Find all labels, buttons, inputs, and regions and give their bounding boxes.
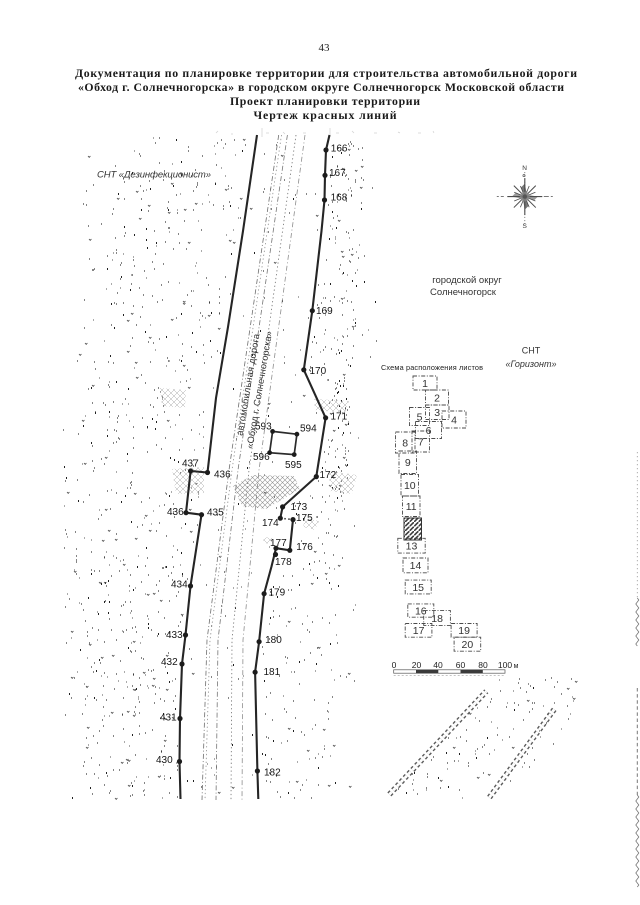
svg-text:435: 435 bbox=[207, 508, 224, 519]
svg-text:173: 173 bbox=[291, 502, 308, 513]
svg-text:15: 15 bbox=[412, 582, 424, 594]
svg-text:8: 8 bbox=[402, 437, 408, 449]
svg-text:СНТ «Дезинфекционист»: СНТ «Дезинфекционист» bbox=[97, 170, 211, 181]
svg-text:м: м bbox=[514, 663, 519, 670]
svg-text:430: 430 bbox=[156, 755, 173, 766]
svg-text:19: 19 bbox=[458, 625, 470, 637]
svg-text:18: 18 bbox=[431, 613, 443, 625]
svg-text:434: 434 bbox=[171, 580, 188, 591]
svg-text:«Обход г. Солнечногорска» в го: «Обход г. Солнечногорска» в городском ок… bbox=[78, 80, 564, 94]
svg-text:176: 176 bbox=[296, 542, 313, 553]
svg-text:3: 3 bbox=[434, 407, 440, 419]
svg-text:1: 1 bbox=[422, 378, 428, 390]
svg-text:180: 180 bbox=[265, 635, 282, 646]
svg-text:«Горизонт»: «Горизонт» bbox=[506, 359, 557, 369]
svg-text:13: 13 bbox=[406, 541, 418, 553]
svg-text:СНТ: СНТ bbox=[522, 346, 541, 356]
svg-text:14: 14 bbox=[410, 560, 422, 572]
svg-text:168: 168 bbox=[331, 193, 348, 204]
svg-text:0: 0 bbox=[392, 660, 397, 670]
svg-text:437: 437 bbox=[182, 459, 199, 470]
svg-text:100: 100 bbox=[498, 660, 512, 670]
svg-text:10: 10 bbox=[404, 480, 416, 492]
svg-text:20: 20 bbox=[462, 639, 474, 651]
svg-text:432: 432 bbox=[161, 657, 178, 668]
svg-text:11: 11 bbox=[406, 501, 417, 513]
svg-text:9: 9 bbox=[405, 457, 411, 469]
svg-text:60: 60 bbox=[456, 660, 466, 670]
svg-text:178: 178 bbox=[275, 557, 292, 568]
svg-text:177: 177 bbox=[270, 538, 287, 549]
svg-text:4: 4 bbox=[451, 414, 457, 426]
svg-text:174: 174 bbox=[262, 518, 279, 529]
svg-text:172: 172 bbox=[320, 470, 337, 481]
svg-text:433: 433 bbox=[166, 630, 183, 641]
svg-text:Проект планировки территории: Проект планировки территории bbox=[230, 94, 420, 108]
svg-text:595: 595 bbox=[285, 460, 302, 471]
svg-text:7: 7 bbox=[418, 436, 424, 448]
svg-text:167: 167 bbox=[329, 168, 346, 179]
svg-text:179: 179 bbox=[269, 588, 286, 599]
svg-text:436: 436 bbox=[167, 507, 184, 518]
svg-text:596: 596 bbox=[253, 452, 270, 463]
svg-text:431: 431 bbox=[160, 713, 177, 724]
svg-text:Схема расположения листов: Схема расположения листов bbox=[381, 363, 483, 372]
svg-text:43: 43 bbox=[319, 42, 331, 54]
svg-text:181: 181 bbox=[264, 667, 281, 678]
svg-text:Солнечногорск: Солнечногорск bbox=[430, 287, 497, 298]
svg-text:S: S bbox=[522, 223, 527, 230]
svg-text:182: 182 bbox=[264, 768, 281, 779]
svg-text:40: 40 bbox=[433, 660, 443, 670]
svg-text:городской округ: городской округ bbox=[432, 275, 502, 286]
svg-text:175: 175 bbox=[296, 513, 313, 524]
svg-text:Документация по планировке тер: Документация по планировке территории дл… bbox=[75, 66, 577, 80]
svg-text:20: 20 bbox=[412, 660, 422, 670]
svg-text:170: 170 bbox=[310, 366, 327, 377]
svg-text:593: 593 bbox=[255, 422, 272, 433]
svg-text:594: 594 bbox=[300, 424, 317, 435]
svg-text:436: 436 bbox=[214, 470, 231, 481]
svg-text:169: 169 bbox=[316, 306, 333, 317]
svg-text:2: 2 bbox=[434, 392, 440, 404]
svg-text:166: 166 bbox=[331, 144, 348, 155]
svg-text:N: N bbox=[522, 165, 527, 172]
svg-text:171: 171 bbox=[331, 412, 348, 423]
svg-text:17: 17 bbox=[413, 625, 425, 637]
svg-text:80: 80 bbox=[478, 660, 488, 670]
svg-text:Чертеж красных линий: Чертеж красных линий bbox=[254, 108, 397, 122]
svg-text:16: 16 bbox=[415, 605, 427, 617]
